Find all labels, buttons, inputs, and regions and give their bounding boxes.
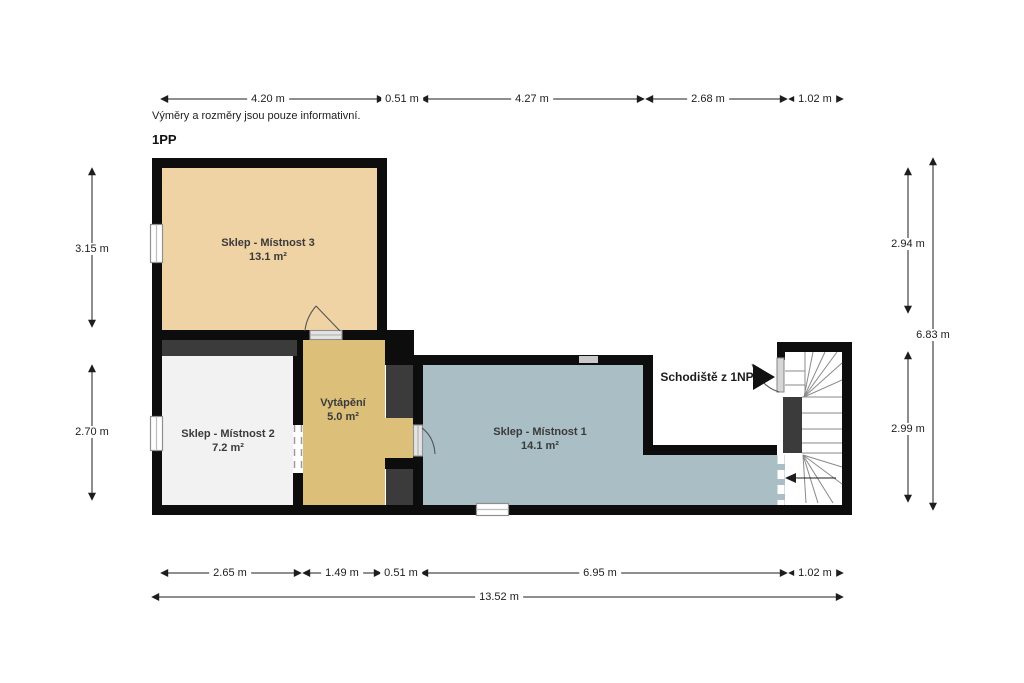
room-vytapeni-fill-ext <box>385 418 413 458</box>
dim-bottom-4: 6.95 m <box>579 567 621 579</box>
stairs-label: Schodiště z 1NP <box>660 370 753 384</box>
room-name: Sklep - Místnost 2 <box>181 427 275 441</box>
dim-bottom-total: 13.52 m <box>475 591 523 603</box>
wall-stairs-right <box>842 342 852 515</box>
room-name: Vytápění <box>320 396 365 410</box>
room-label-sklep2: Sklep - Místnost 2 7.2 m² <box>181 427 275 455</box>
dim-left-1: 3.15 m <box>71 243 113 255</box>
wall-sklep2-vytapeni <box>293 340 303 505</box>
mass-pillar-lower <box>386 469 413 505</box>
dim-top-2: 0.51 m <box>381 93 423 105</box>
window-sklep2-left <box>151 417 163 451</box>
dim-bottom-5: 1.02 m <box>794 567 836 579</box>
dim-left-2: 2.70 m <box>71 426 113 438</box>
stairs-pointer-icon <box>753 364 775 390</box>
dim-bottom-2: 1.49 m <box>321 567 363 579</box>
room-area: 5.0 m² <box>320 410 365 424</box>
wall-corridor-top <box>414 355 653 365</box>
wall-sklep3-right <box>377 158 387 340</box>
dim-bottom-3: 0.51 m <box>380 567 422 579</box>
room-sklep1-fill-ext <box>643 455 785 505</box>
dim-top-5: 1.02 m <box>794 93 836 105</box>
floorplan-page: Výměry a rozměry jsou pouze informativní… <box>0 0 1024 683</box>
floor-title: 1PP <box>152 132 177 147</box>
dim-bottom-1: 2.65 m <box>209 567 251 579</box>
wall-stairs-top <box>777 342 852 352</box>
wall-top <box>152 158 387 168</box>
dim-right-total: 6.83 m <box>912 329 954 341</box>
room-name: Sklep - Místnost 3 <box>221 236 315 250</box>
room-name: Sklep - Místnost 1 <box>493 425 587 439</box>
wall-stairs-left-stub <box>777 342 785 360</box>
window-sklep3-left <box>151 225 163 263</box>
wall-niche <box>579 356 598 363</box>
wall-notch-vertical <box>643 355 653 455</box>
mass-pillar-upper <box>386 365 413 418</box>
dim-top-4: 2.68 m <box>687 93 729 105</box>
wall-notch-horizontal <box>643 445 785 455</box>
room-area: 14.1 m² <box>493 439 587 453</box>
room-label-vytapeni: Vytápění 5.0 m² <box>320 396 365 424</box>
dim-top-3: 4.27 m <box>511 93 553 105</box>
mass-band-sklep2-top <box>162 340 297 356</box>
room-area: 7.2 m² <box>181 441 275 455</box>
window-sklep1-bottom <box>477 504 509 516</box>
dim-right-2: 2.99 m <box>887 423 929 435</box>
room-area: 13.1 m² <box>221 250 315 264</box>
dim-top-1: 4.20 m <box>247 93 289 105</box>
room-label-sklep1: Sklep - Místnost 1 14.1 m² <box>493 425 587 453</box>
wall-connector <box>385 458 413 469</box>
dim-right-1: 2.94 m <box>887 238 929 250</box>
disclaimer-note: Výměry a rozměry jsou pouze informativní… <box>152 110 360 122</box>
room-label-sklep3: Sklep - Místnost 3 13.1 m² <box>221 236 315 264</box>
mass-stairs-core <box>783 397 802 453</box>
